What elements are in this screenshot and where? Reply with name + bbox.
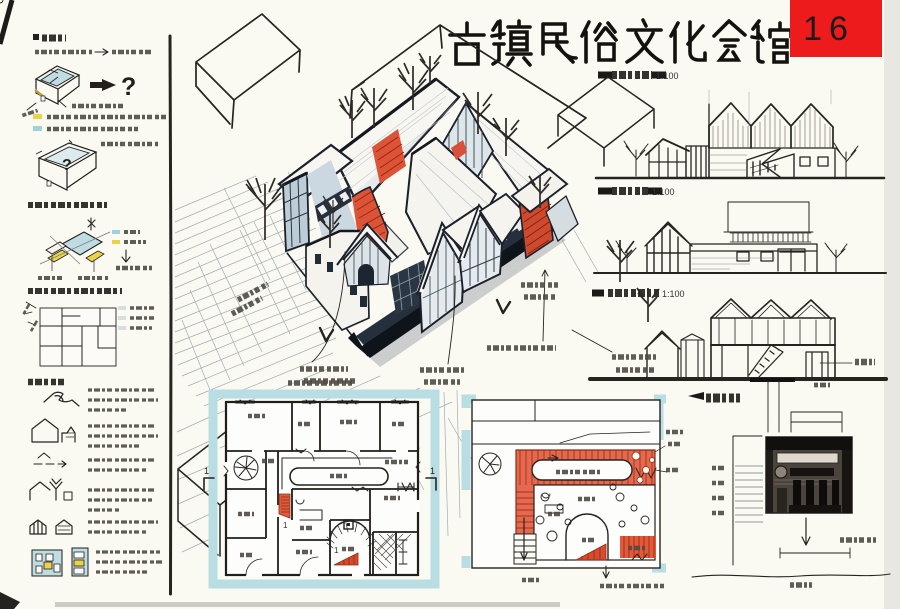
svg-text:?: ? bbox=[121, 73, 136, 101]
svg-text:1: 1 bbox=[430, 466, 435, 476]
svg-text:1: 1 bbox=[204, 466, 209, 476]
svg-text:1: 1 bbox=[334, 546, 339, 555]
svg-text:1: 1 bbox=[283, 521, 288, 530]
svg-text:1:100: 1:100 bbox=[662, 289, 685, 299]
svg-text:16: 16 bbox=[803, 10, 855, 48]
svg-text:?: ? bbox=[62, 157, 72, 174]
svg-text:1:100: 1:100 bbox=[656, 71, 679, 81]
svg-text:1:100: 1:100 bbox=[652, 187, 675, 197]
